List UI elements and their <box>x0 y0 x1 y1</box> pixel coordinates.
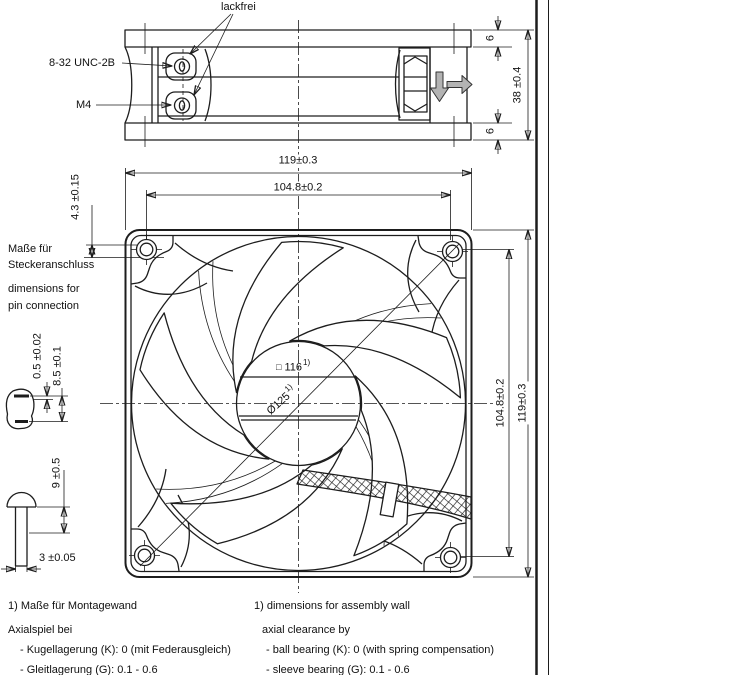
pin-note-de-line2: Steckeranschluss <box>8 259 94 272</box>
terminal-connector <box>396 48 431 120</box>
footnote-line: 1) Maße für Montagewand <box>8 596 231 616</box>
footnote-line: 1) dimensions for assembly wall <box>254 596 494 616</box>
dim-depth: 38 ±0.4 <box>512 65 525 106</box>
dim-flange-top: 6 <box>485 33 498 43</box>
screw-thread-bottom-label: M4 <box>76 99 91 112</box>
lackfrei-label: lackfrei <box>221 1 256 14</box>
dim-hole-pitch-vertical: 104.8±0.2 <box>495 377 508 430</box>
pin-note-en-line2: pin connection <box>8 300 79 313</box>
corner-mounting-hole <box>131 234 233 294</box>
drawing-linework <box>0 0 746 675</box>
footnote-line: Axialspiel bei <box>8 620 231 640</box>
screw-bosses <box>166 49 211 121</box>
dim-pin-spacing: 8.5 ±0.1 <box>52 344 65 388</box>
airflow-direction-arrow <box>431 72 449 102</box>
footnote-line: axial clearance by <box>262 620 494 640</box>
footnote-line: - ball bearing (K): 0 (with spring compe… <box>266 640 494 660</box>
dim-flange-bottom: 6 <box>485 126 498 136</box>
footnote-line: - Kugellagerung (K): 0 (mit Federausglei… <box>20 640 231 660</box>
pin-connection-detail <box>6 382 68 429</box>
footnote-ref: 1) <box>303 358 310 367</box>
dim-hole-pitch: 104.8±0.2 <box>272 182 325 195</box>
dim-rivet-length: 9 ±0.5 <box>51 456 64 491</box>
pin-note-en-line1: dimensions for <box>8 283 80 296</box>
dim-pin-depth: 4.3 ±0.15 <box>70 172 83 222</box>
side-view-dimensions <box>473 16 534 154</box>
dim-height-outer: 119±0.3 <box>517 382 530 425</box>
footnotes-english: 1) dimensions for assembly wall axial cl… <box>254 596 494 675</box>
hub-square-dimension: □ 1161) <box>276 357 309 375</box>
screw-thread-top-label: 8-32 UNC-2B <box>49 57 115 70</box>
footnotes-german: 1) Maße für Montagewand Axialspiel bei -… <box>8 596 231 675</box>
pin-note-de-line1: Maße für <box>8 243 52 256</box>
unc-leader <box>122 63 172 66</box>
footnote-line: - Gleitlagerung (G): 0.1 - 0.6 <box>20 660 231 675</box>
dim-pin-protrusion: 0.5 ±0.02 <box>32 331 45 381</box>
dim-width-outer: 119±0.3 <box>277 155 320 168</box>
fan-technical-drawing-sheet: lackfrei 8-32 UNC-2B M4 38 ±0.4 6 6 119±… <box>0 0 746 675</box>
sheet-border <box>537 0 549 675</box>
square-symbol: □ <box>276 362 281 372</box>
rotation-direction-arrow <box>447 76 472 94</box>
side-view <box>96 14 534 154</box>
dim-rivet-diameter: 3 ±0.05 <box>39 552 76 565</box>
footnote-line: - sleeve bearing (G): 0.1 - 0.6 <box>266 660 494 675</box>
